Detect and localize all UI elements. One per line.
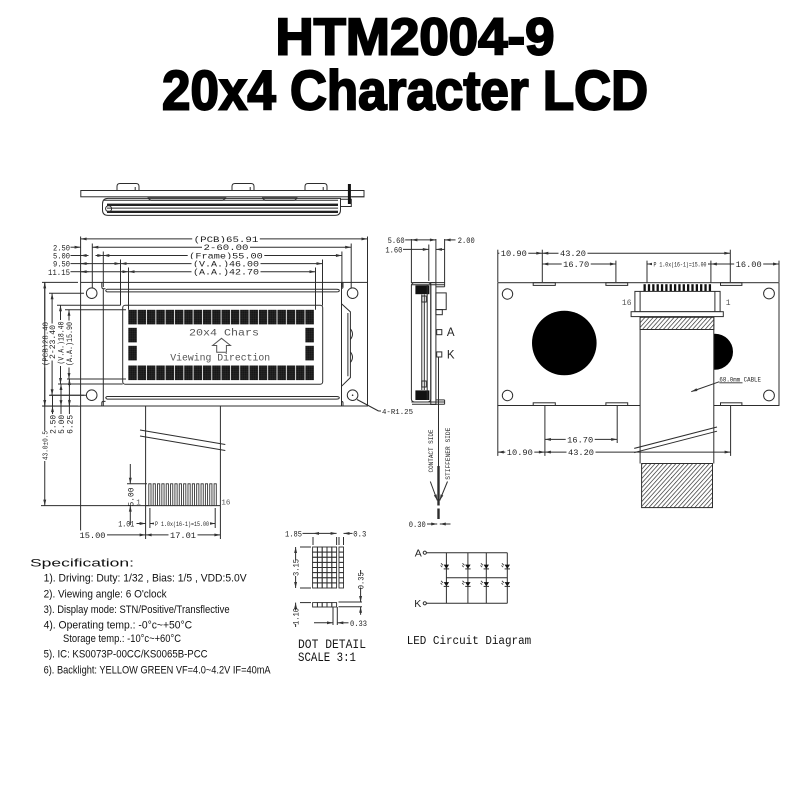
svg-text:43.20: 43.20 <box>560 249 586 259</box>
svg-text:DOT DETAIL: DOT DETAIL <box>298 638 366 652</box>
svg-text:6). Backlight: YELLOW GREEN VF: 6). Backlight: YELLOW GREEN VF=4.0~4.2V … <box>44 664 272 676</box>
svg-text:K: K <box>414 598 421 610</box>
svg-text:20x4 Chars: 20x4 Chars <box>189 327 259 339</box>
svg-text:1: 1 <box>136 499 141 507</box>
svg-text:2). Viewing angle: 6 O'clock: 2). Viewing angle: 6 O'clock <box>44 588 167 600</box>
svg-text:20x4 Character LCD: 20x4 Character LCD <box>162 59 648 122</box>
svg-text:LED Circuit Diagram: LED Circuit Diagram <box>407 635 532 648</box>
svg-text:1). Driving: Duty: 1/32 , Bias: 1). Driving: Duty: 1/32 , Bias: 1/5 , VD… <box>44 573 248 585</box>
svg-text:K: K <box>447 349 455 361</box>
svg-text:SCALE 3:1: SCALE 3:1 <box>298 651 356 665</box>
svg-text:1.85: 1.85 <box>285 529 302 539</box>
svg-text:0.30: 0.30 <box>409 520 426 530</box>
svg-text:43.0±0.5: 43.0±0.5 <box>43 431 51 460</box>
svg-text:16: 16 <box>622 299 632 308</box>
svg-text:3.15: 3.15 <box>292 559 302 576</box>
svg-text:2.00: 2.00 <box>458 236 475 246</box>
svg-text:Viewing Direction: Viewing Direction <box>170 352 270 364</box>
svg-text:3). Display mode: STN/Positive: 3). Display mode: STN/Positive/Transflec… <box>44 604 230 616</box>
svg-text:15.00: 15.00 <box>80 531 106 541</box>
svg-text:CONTACT SIDE: CONTACT SIDE <box>428 430 436 473</box>
svg-text:A: A <box>415 548 422 560</box>
svg-text:5.00: 5.00 <box>126 488 136 507</box>
svg-text:1.10: 1.10 <box>292 608 302 625</box>
svg-text:11.15: 11.15 <box>48 268 70 278</box>
svg-text:(A.A.)15.90: (A.A.)15.90 <box>65 322 75 366</box>
svg-text:A: A <box>447 327 455 339</box>
svg-text:43.20: 43.20 <box>568 448 594 458</box>
svg-text:Storage temp.: -10°c~+60°C: Storage temp.: -10°c~+60°C <box>63 633 181 645</box>
svg-text:1: 1 <box>726 299 731 308</box>
svg-text:16.00: 16.00 <box>736 260 762 270</box>
svg-text:5). IC: KS0073P-00CC/KS0065B-P: 5). IC: KS0073P-00CC/KS0065B-PCC <box>44 649 208 661</box>
svg-text:5.60: 5.60 <box>388 236 405 246</box>
svg-text:4). Operating temp.: -0°c~+50°: 4). Operating temp.: -0°c~+50°C <box>44 620 193 632</box>
svg-text:6.25: 6.25 <box>65 415 75 434</box>
svg-text:10.90: 10.90 <box>507 448 533 458</box>
svg-text:(A.A.)42.70: (A.A.)42.70 <box>193 268 259 278</box>
svg-text:17.01: 17.01 <box>170 531 196 541</box>
svg-text:68.0mm CABLE: 68.0mm CABLE <box>719 377 761 385</box>
svg-text:16.70: 16.70 <box>567 435 593 445</box>
svg-text:16.70: 16.70 <box>563 260 589 270</box>
svg-text:16: 16 <box>221 499 231 507</box>
svg-text:0.33: 0.33 <box>350 619 367 629</box>
svg-text:10.90: 10.90 <box>501 249 527 259</box>
svg-text:STIFFENER SIDE: STIFFENER SIDE <box>445 428 453 480</box>
svg-text:1.01: 1.01 <box>118 520 134 530</box>
svg-text:Specification:: Specification: <box>30 558 134 570</box>
svg-text:4-R1.25: 4-R1.25 <box>382 409 413 417</box>
svg-text:1.60: 1.60 <box>385 246 402 256</box>
svg-text:P 1.0x(16-1)=15.00: P 1.0x(16-1)=15.00 <box>155 521 209 528</box>
svg-text:P 1.0x(16-1)=15.00: P 1.0x(16-1)=15.00 <box>654 262 707 269</box>
svg-text:0.3: 0.3 <box>353 529 366 539</box>
svg-text:0.35: 0.35 <box>357 572 367 589</box>
